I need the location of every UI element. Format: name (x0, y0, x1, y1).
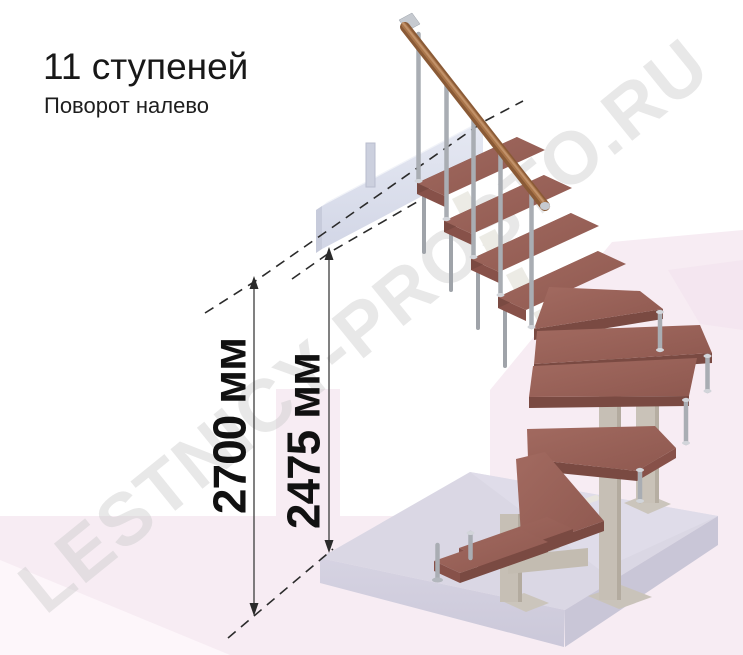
dimension-label-2700: 2700 мм (204, 338, 256, 514)
page-subtitle: Поворот налево (44, 93, 209, 118)
beam-mounting-plate (366, 143, 375, 187)
staircase-diagram: LESTNICY-PROSTO.RU (0, 0, 743, 655)
dimension-label-2475: 2475 мм (278, 353, 330, 529)
tread (529, 358, 697, 408)
staircase-illustration: LESTNICY-PROSTO.RU (0, 0, 743, 655)
handrail-end-ferrule (540, 202, 550, 210)
page-title: 11 ступеней (43, 46, 248, 87)
